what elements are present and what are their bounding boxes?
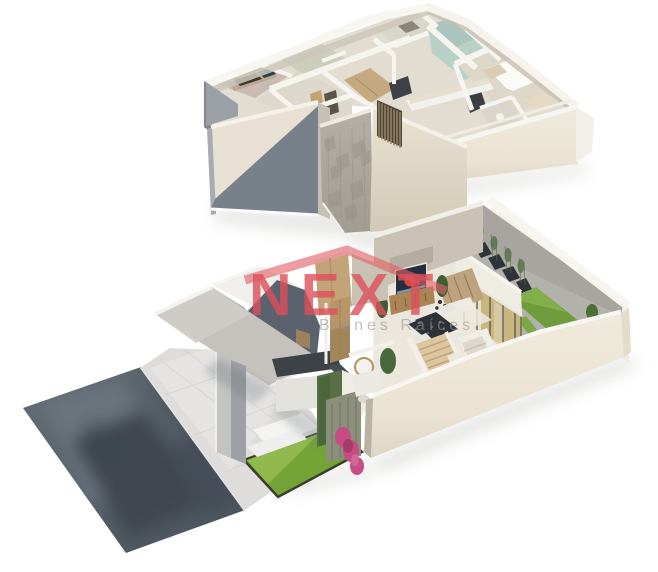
svg-text:Bienes Raíces: Bienes Raíces xyxy=(319,317,474,334)
